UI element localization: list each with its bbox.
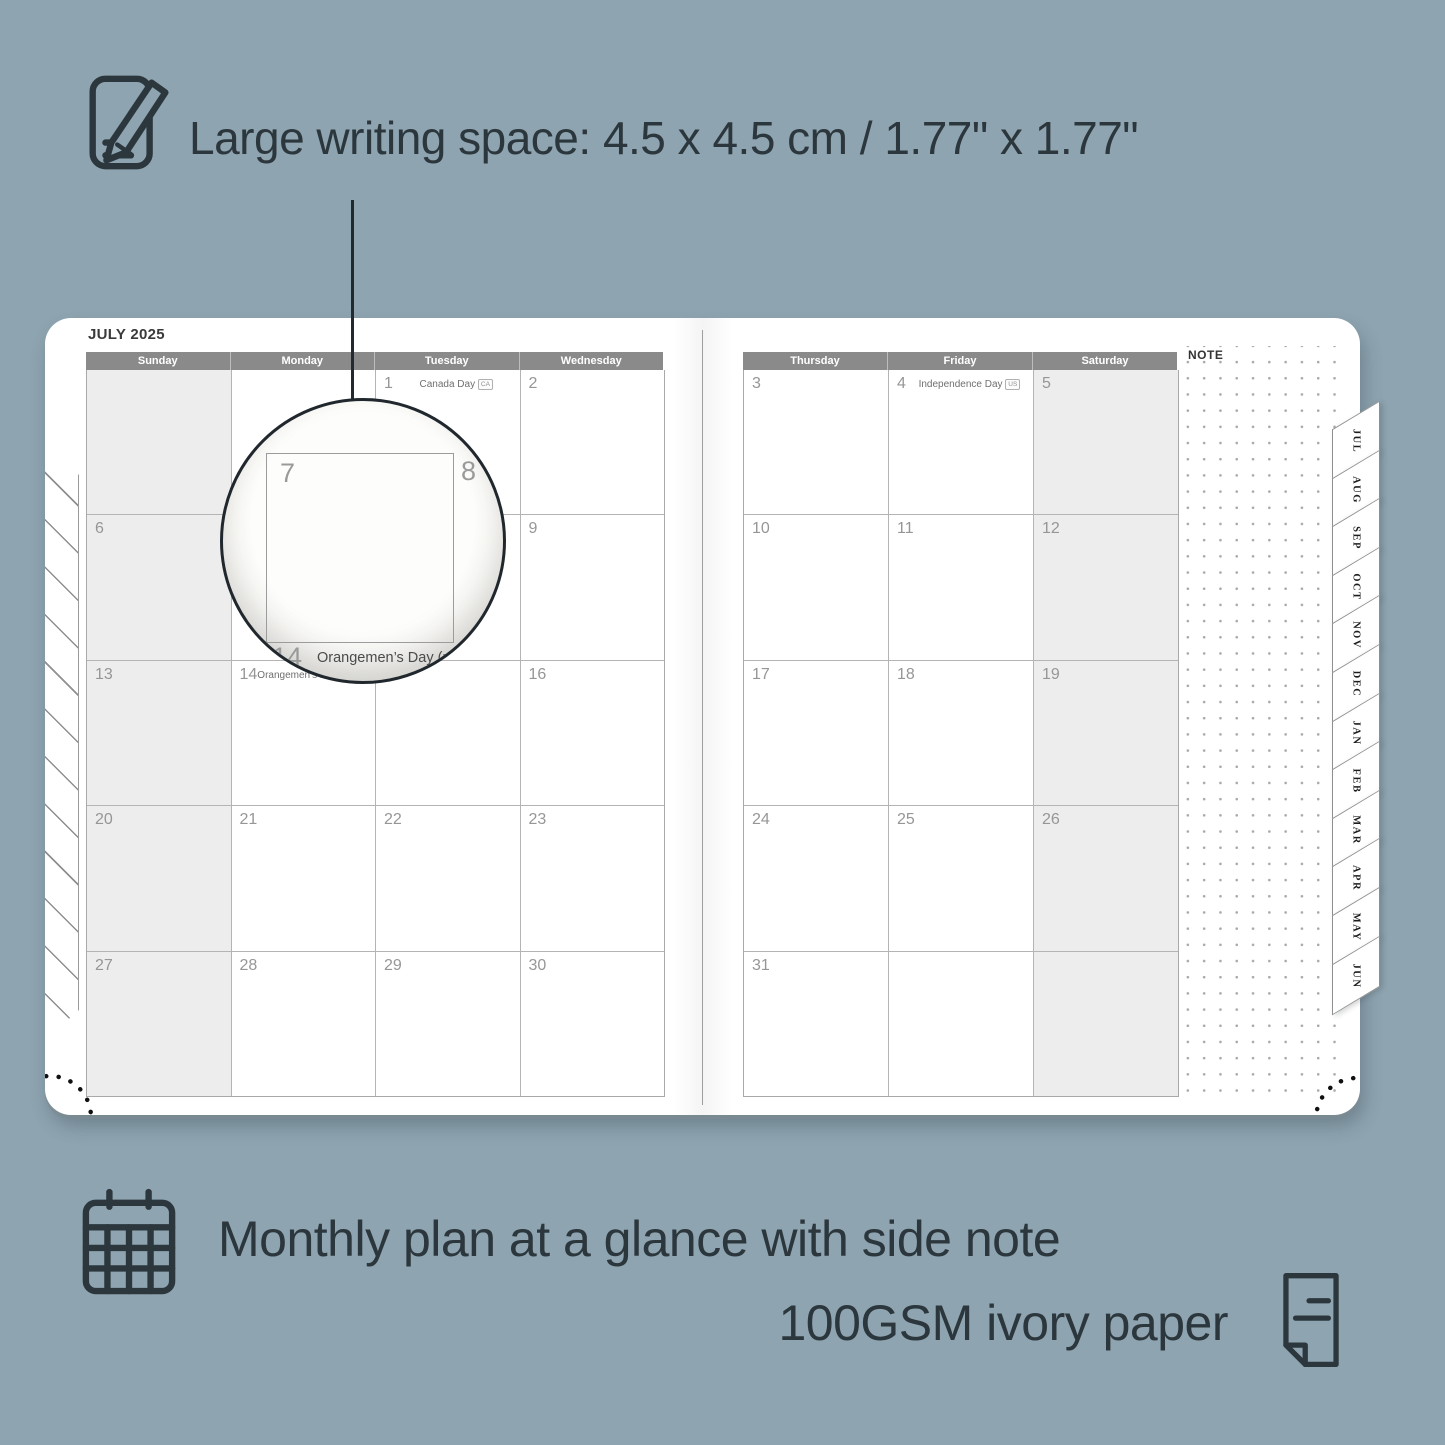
magnified-day-14: 14 xyxy=(272,642,302,673)
month-tab-strip: JULAUGSEPOCTNOVDECJANFEBMARAPRMAYJUN xyxy=(1332,415,1378,1075)
corner-stitch-arcs xyxy=(45,318,1360,1115)
callout-connector-line xyxy=(351,200,354,401)
pencil-note-icon xyxy=(82,66,177,174)
planner-page: JULY 2025 SundayMondayTuesdayWednesday T… xyxy=(45,318,1360,1115)
magnified-holiday-label: Orangemen’s Day (n.i.) xyxy=(317,650,467,666)
calendar-icon xyxy=(80,1188,178,1298)
paper-icon xyxy=(1272,1268,1350,1374)
magnified-holiday: Orangemen’s Day (n.i.)UK xyxy=(317,650,493,666)
bottom-annotation-2: 100GSM ivory paper xyxy=(778,1294,1228,1352)
bottom-annotation-1: Monthly plan at a glance with side note xyxy=(218,1210,1060,1268)
magnified-holiday-badge: UK xyxy=(471,651,494,666)
planner-spread: JULY 2025 SundayMondayTuesdayWednesday T… xyxy=(45,318,1360,1115)
top-annotation-text: Large writing space: 4.5 x 4.5 cm / 1.77… xyxy=(189,111,1138,165)
magnified-day-7: 7 xyxy=(280,458,295,489)
magnifier-circle: 7 8 14 15 Orangemen’s Day (n.i.)UK xyxy=(220,398,506,684)
magnified-day-8: 8 xyxy=(461,456,476,487)
